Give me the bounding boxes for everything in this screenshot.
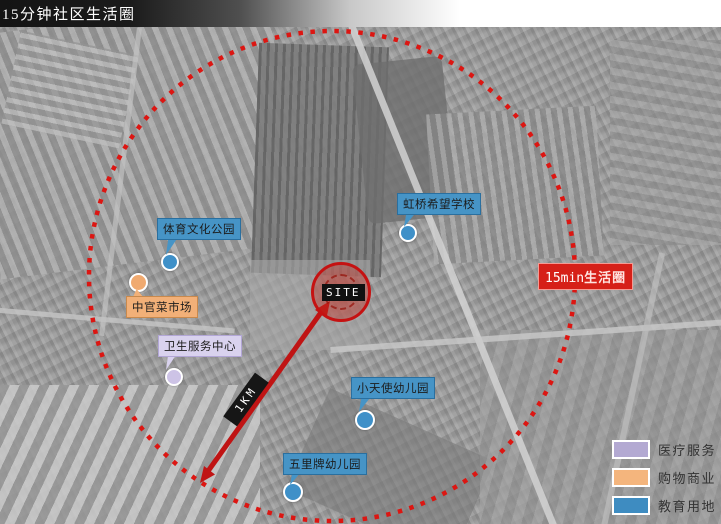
radius-badge: 15min生活圈 [538,263,633,290]
marker-dot [161,253,179,271]
legend-label: 医疗服务 [658,440,716,459]
map-texture-patch [426,106,604,265]
marker-dot [165,368,183,386]
marker-dot [129,273,148,292]
radius-badge-min: 15min [545,271,584,286]
legend-label: 教育用地 [658,496,716,515]
callout-label: 虹桥希望学校 [397,193,481,215]
site-label: SITE [322,284,365,301]
callout-label: 中官菜市场 [126,296,198,318]
legend: 医疗服务 购物商业 教育用地 [612,441,716,524]
page-title: 15分钟社区生活圈 [2,3,136,24]
map-road [0,308,235,334]
legend-item-medical: 医疗服务 [612,441,716,457]
marker-dot [283,482,303,502]
legend-swatch-medical [612,440,650,459]
callout-label: 小天使幼儿园 [351,377,435,399]
map-texture-patch [0,385,260,524]
radius-badge-cjk: 生活圈 [584,270,626,285]
legend-swatch-education [612,496,650,515]
callout-label: 体育文化公园 [157,218,241,240]
map-texture-patch [610,40,721,245]
legend-label: 购物商业 [658,468,716,487]
legend-swatch-commerce [612,468,650,487]
legend-item-education: 教育用地 [612,497,716,513]
page: SITE 1KM 体育文化公园 虹桥希望学校 中官菜市场 卫生服务中心 小天使幼… [0,0,721,524]
callout-label: 卫生服务中心 [158,335,242,357]
marker-dot [399,224,417,242]
title-bar: 15分钟社区生活圈 [0,0,721,27]
marker-dot [355,410,375,430]
callout-label: 五里牌幼儿园 [283,453,367,475]
legend-item-commerce: 购物商业 [612,469,716,485]
